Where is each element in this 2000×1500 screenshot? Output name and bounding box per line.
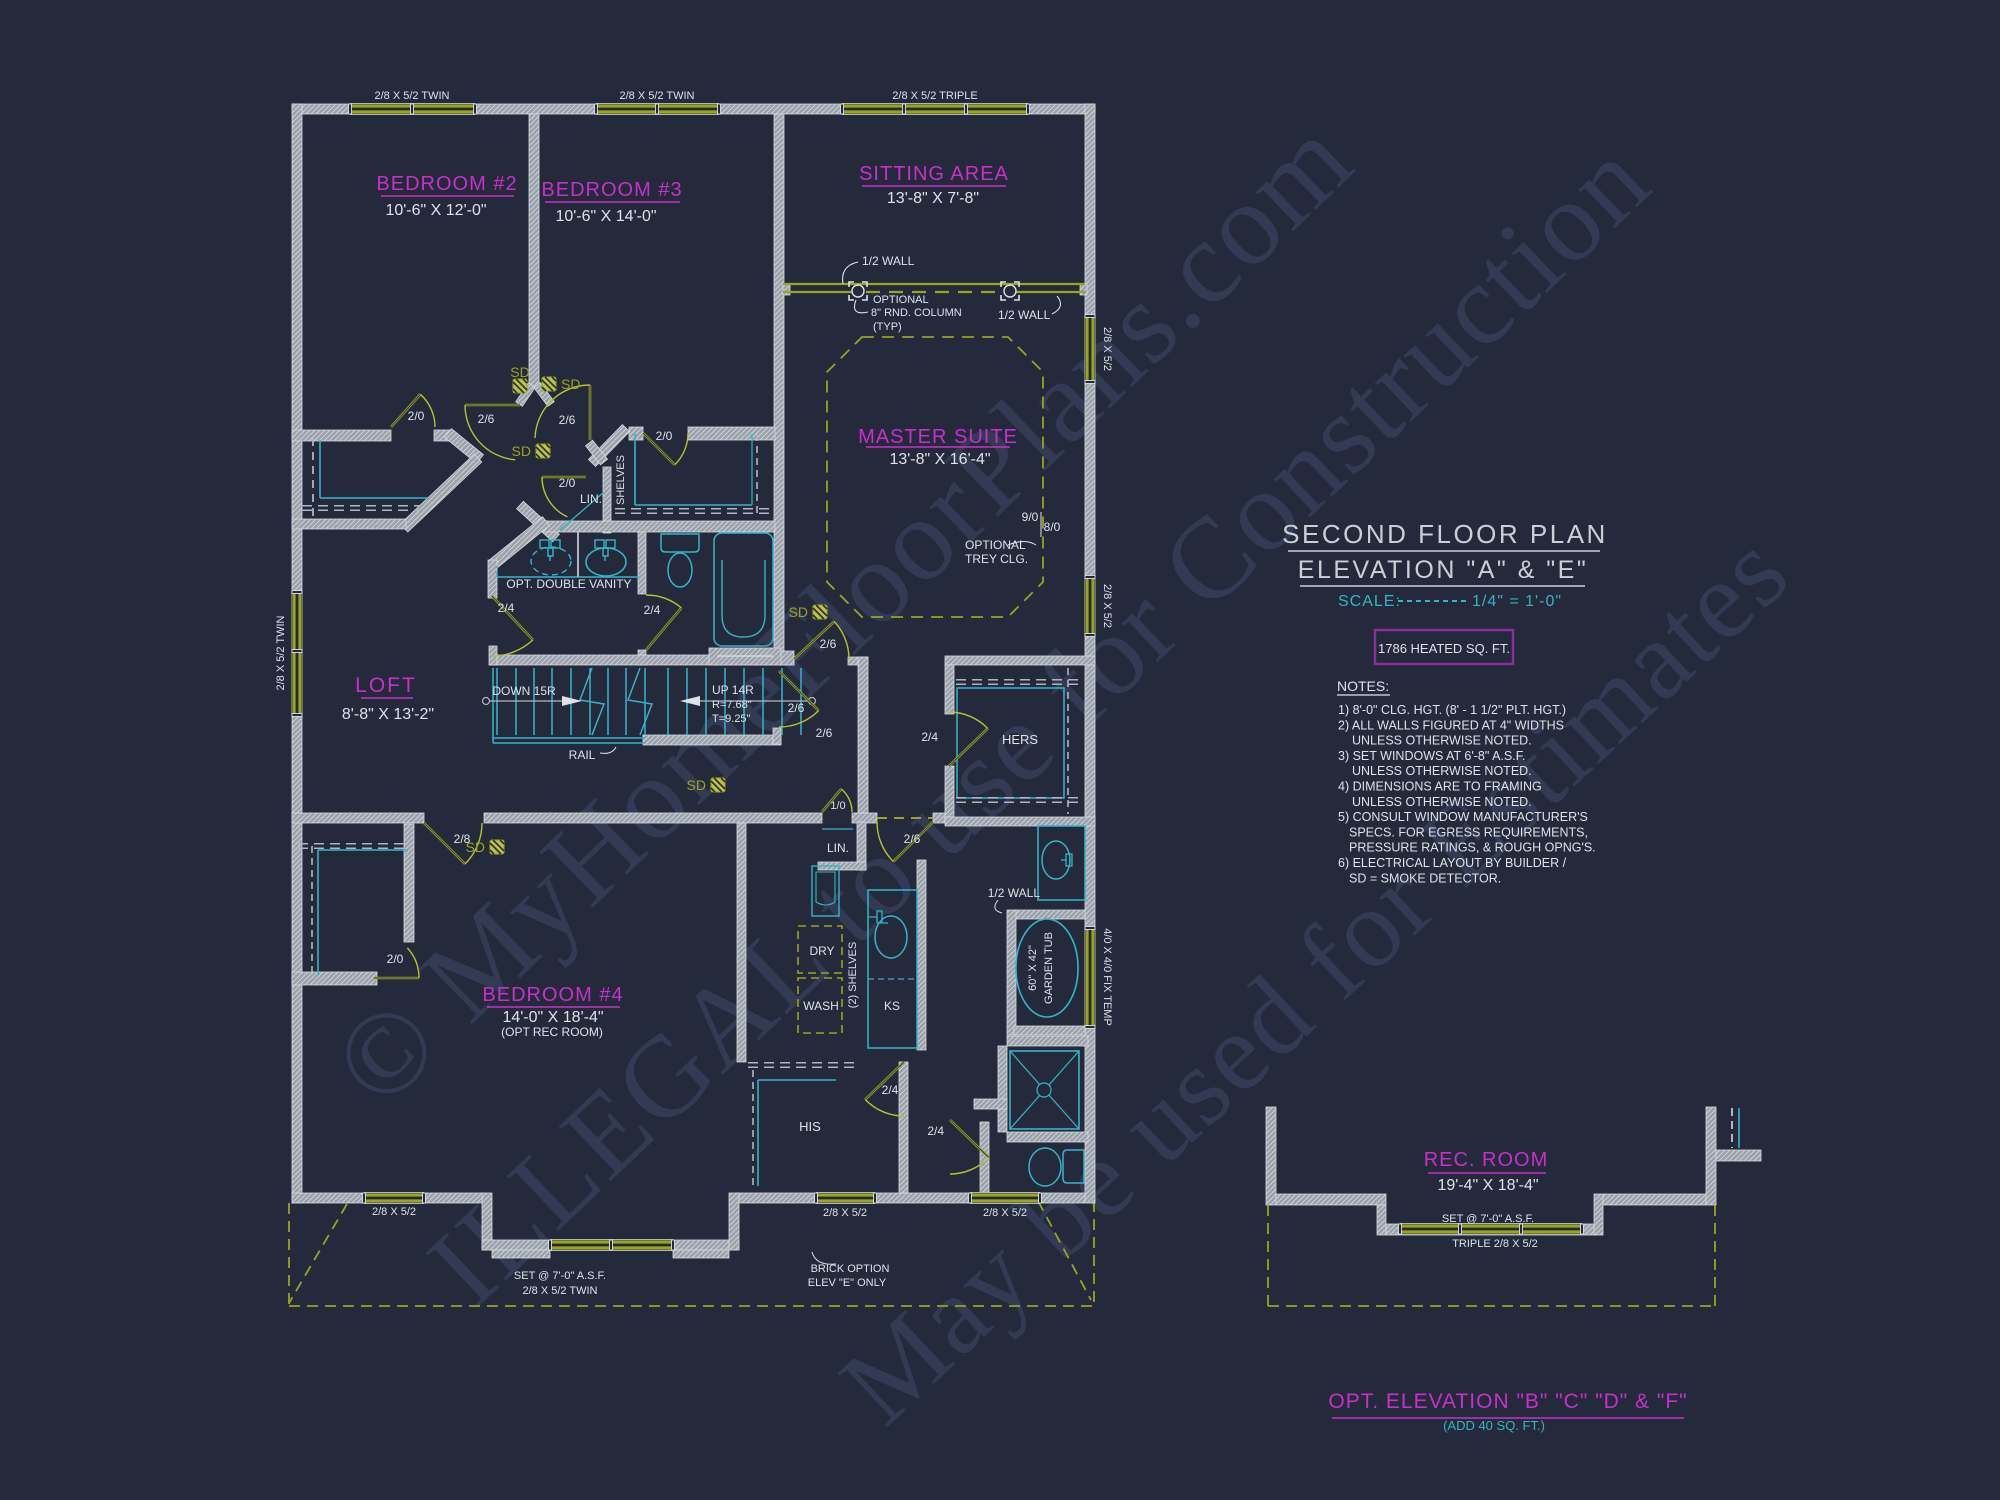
svg-text:OPT. DOUBLE VANITY: OPT. DOUBLE VANITY [506, 577, 631, 591]
svg-text:13'-8" X 16'-4": 13'-8" X 16'-4" [889, 451, 990, 468]
svg-text:2/6: 2/6 [478, 412, 495, 426]
svg-text:GARDEN TUB: GARDEN TUB [1043, 932, 1055, 1004]
svg-text:LIN.: LIN. [580, 492, 602, 506]
svg-text:3) SET WINDOWS AT 6'-8" A.S.F.: 3) SET WINDOWS AT 6'-8" A.S.F. [1338, 749, 1525, 763]
svg-text:(OPT REC ROOM): (OPT REC ROOM) [501, 1025, 603, 1039]
svg-text:2/0: 2/0 [387, 952, 404, 966]
svg-text:REC. ROOM: REC. ROOM [1424, 1149, 1549, 1171]
svg-text:KS: KS [884, 999, 900, 1013]
svg-text:8'-8" X 13'-2": 8'-8" X 13'-2" [342, 706, 434, 723]
svg-text:2/8 X 5/2 TRIPLE: 2/8 X 5/2 TRIPLE [892, 90, 977, 102]
svg-text:1/2 WALL: 1/2 WALL [862, 254, 915, 268]
svg-text:LOFT: LOFT [355, 674, 417, 697]
svg-text:2/8 X 5/2 TWIN: 2/8 X 5/2 TWIN [375, 90, 450, 102]
svg-text:TRIPLE 2/8 X 5/2: TRIPLE 2/8 X 5/2 [1452, 1238, 1538, 1250]
svg-text:2/4: 2/4 [498, 601, 515, 615]
svg-text:UNLESS OTHERWISE NOTED.: UNLESS OTHERWISE NOTED. [1352, 734, 1532, 748]
svg-text:OPTIONAL: OPTIONAL [873, 294, 929, 306]
svg-text:BEDROOM #4: BEDROOM #4 [482, 984, 623, 1006]
svg-text:2/6: 2/6 [816, 726, 833, 740]
svg-text:TREY CLG.: TREY CLG. [965, 552, 1028, 566]
svg-text:2/8 X 5/2 TWIN: 2/8 X 5/2 TWIN [523, 1285, 598, 1297]
svg-text:SCALE:: SCALE: [1338, 593, 1401, 610]
svg-text:ELEV "E" ONLY: ELEV "E" ONLY [808, 1277, 887, 1289]
svg-text:R=7.68": R=7.68" [712, 699, 752, 711]
svg-text:6) ELECTRICAL LAYOUT BY BUILDE: 6) ELECTRICAL LAYOUT BY BUILDER / [1338, 856, 1567, 870]
svg-text:2/0: 2/0 [559, 476, 576, 490]
svg-text:MASTER SUITE: MASTER SUITE [858, 426, 1018, 448]
svg-text:1/2 WALL: 1/2 WALL [998, 308, 1051, 322]
svg-text:1/0: 1/0 [830, 800, 845, 812]
svg-text:2/8 X 5/2: 2/8 X 5/2 [372, 1206, 416, 1218]
svg-text:(2) SHELVES: (2) SHELVES [847, 942, 859, 1008]
svg-text:2/6: 2/6 [820, 637, 837, 651]
svg-text:WASH: WASH [803, 999, 839, 1013]
svg-text:DOWN 15R: DOWN 15R [492, 684, 556, 698]
svg-text:2/6: 2/6 [559, 413, 576, 427]
svg-text:1786 HEATED SQ. FT.: 1786 HEATED SQ. FT. [1378, 641, 1510, 656]
svg-text:PRESSURE RATINGS, & ROUGH OPNG: PRESSURE RATINGS, & ROUGH OPNG'S. [1349, 841, 1596, 855]
svg-text:SD: SD [687, 777, 706, 793]
svg-text:2/6: 2/6 [788, 701, 805, 715]
svg-text:2/8 X 5/2 TWIN: 2/8 X 5/2 TWIN [275, 615, 287, 690]
svg-text:4) DIMENSIONS ARE TO FRAMING: 4) DIMENSIONS ARE TO FRAMING [1338, 780, 1542, 794]
svg-text:NOTES:: NOTES: [1337, 678, 1389, 694]
svg-text:2/8 X 5/2: 2/8 X 5/2 [823, 1207, 867, 1219]
svg-text:BEDROOM #2: BEDROOM #2 [376, 173, 517, 195]
svg-text:9/0: 9/0 [1022, 510, 1039, 524]
svg-text:1/2 WALL: 1/2 WALL [988, 886, 1041, 900]
svg-text:SPECS. FOR EGRESS REQUIREMENTS: SPECS. FOR EGRESS REQUIREMENTS, [1349, 825, 1588, 839]
svg-text:DRY: DRY [809, 944, 834, 958]
svg-text:1/4" = 1'-0": 1/4" = 1'-0" [1472, 593, 1562, 610]
svg-text:SD = SMOKE DETECTOR.: SD = SMOKE DETECTOR. [1349, 871, 1501, 885]
svg-text:SD: SD [561, 376, 580, 392]
svg-text:2) ALL WALLS FIGURED AT 4" WI: 2) ALL WALLS FIGURED AT 4" WIDTHS [1338, 718, 1564, 732]
svg-text:UNLESS OTHERWISE NOTED.: UNLESS OTHERWISE NOTED. [1352, 764, 1532, 778]
svg-text:2/8 X 5/2: 2/8 X 5/2 [1101, 584, 1113, 628]
svg-text:13'-8" X 7'-8": 13'-8" X 7'-8" [887, 190, 979, 207]
svg-text:5) CONSULT WINDOW MANUFACTURER: 5) CONSULT WINDOW MANUFACTURER'S [1338, 810, 1588, 824]
svg-text:HIS: HIS [799, 1119, 821, 1134]
svg-text:60" X 42": 60" X 42" [1027, 945, 1039, 991]
svg-text:(ADD 40 SQ. FT.): (ADD 40 SQ. FT.) [1443, 1418, 1545, 1433]
svg-text:10'-6" X 14'-0": 10'-6" X 14'-0" [555, 208, 656, 225]
svg-text:SD: SD [510, 364, 529, 380]
svg-text:ELEVATION "A" & "E": ELEVATION "A" & "E" [1298, 556, 1588, 584]
svg-text:LIN.: LIN. [827, 841, 849, 855]
svg-text:OPT. ELEVATION "B" "C" "D" & ": OPT. ELEVATION "B" "C" "D" & "F" [1328, 1390, 1687, 1413]
svg-text:2/4: 2/4 [644, 603, 661, 617]
svg-text:1) 8'-0" CLG. HGT. (8' - 1 1/: 1) 8'-0" CLG. HGT. (8' - 1 1/2" PLT. HGT… [1338, 703, 1566, 717]
svg-text:BEDROOM #3: BEDROOM #3 [541, 179, 682, 201]
svg-text:SHELVES: SHELVES [615, 455, 627, 505]
svg-text:(TYP): (TYP) [873, 321, 902, 333]
svg-text:SET @ 7'-0" A.S.F.: SET @ 7'-0" A.S.F. [514, 1270, 606, 1282]
svg-text:2/4: 2/4 [927, 1124, 944, 1138]
svg-text:2/4: 2/4 [882, 1083, 899, 1097]
svg-text:4/0 X 4/0 FIX TEMP: 4/0 X 4/0 FIX TEMP [1101, 928, 1113, 1026]
svg-text:14'-0" X 18'-4": 14'-0" X 18'-4" [502, 1009, 603, 1026]
svg-text:2/0: 2/0 [656, 429, 673, 443]
svg-text:SD: SD [789, 604, 808, 620]
svg-text:SECOND FLOOR PLAN: SECOND FLOOR PLAN [1282, 519, 1608, 549]
svg-text:SD: SD [512, 443, 531, 459]
svg-text:10'-6" X 12'-0": 10'-6" X 12'-0" [385, 202, 486, 219]
svg-text:8" RND. COLUMN: 8" RND. COLUMN [871, 307, 962, 319]
svg-text:SD: SD [466, 839, 485, 855]
svg-text:2/8 X 5/2: 2/8 X 5/2 [983, 1207, 1027, 1219]
svg-text:2/6: 2/6 [904, 832, 921, 846]
svg-text:T=9.25": T=9.25" [712, 713, 751, 725]
svg-text:UP 14R: UP 14R [712, 683, 754, 697]
svg-text:OPTIONAL: OPTIONAL [965, 538, 1026, 552]
svg-text:2/0: 2/0 [408, 409, 425, 423]
svg-text:8/0: 8/0 [1044, 520, 1061, 534]
svg-text:BRICK OPTION: BRICK OPTION [811, 1263, 890, 1275]
svg-text:2/4: 2/4 [921, 730, 938, 744]
svg-text:2/8 X 5/2 TWIN: 2/8 X 5/2 TWIN [620, 90, 695, 102]
svg-text:SET @ 7'-0" A.S.F.: SET @ 7'-0" A.S.F. [1442, 1213, 1534, 1225]
svg-text:RAIL: RAIL [569, 748, 596, 762]
svg-text:HERS: HERS [1002, 732, 1038, 747]
svg-text:UNLESS OTHERWISE NOTED.: UNLESS OTHERWISE NOTED. [1352, 795, 1532, 809]
svg-text:2/8 X 5/2: 2/8 X 5/2 [1101, 327, 1113, 371]
svg-text:19'-4" X 18'-4": 19'-4" X 18'-4" [1437, 1177, 1538, 1194]
svg-text:SITTING AREA: SITTING AREA [859, 163, 1009, 185]
